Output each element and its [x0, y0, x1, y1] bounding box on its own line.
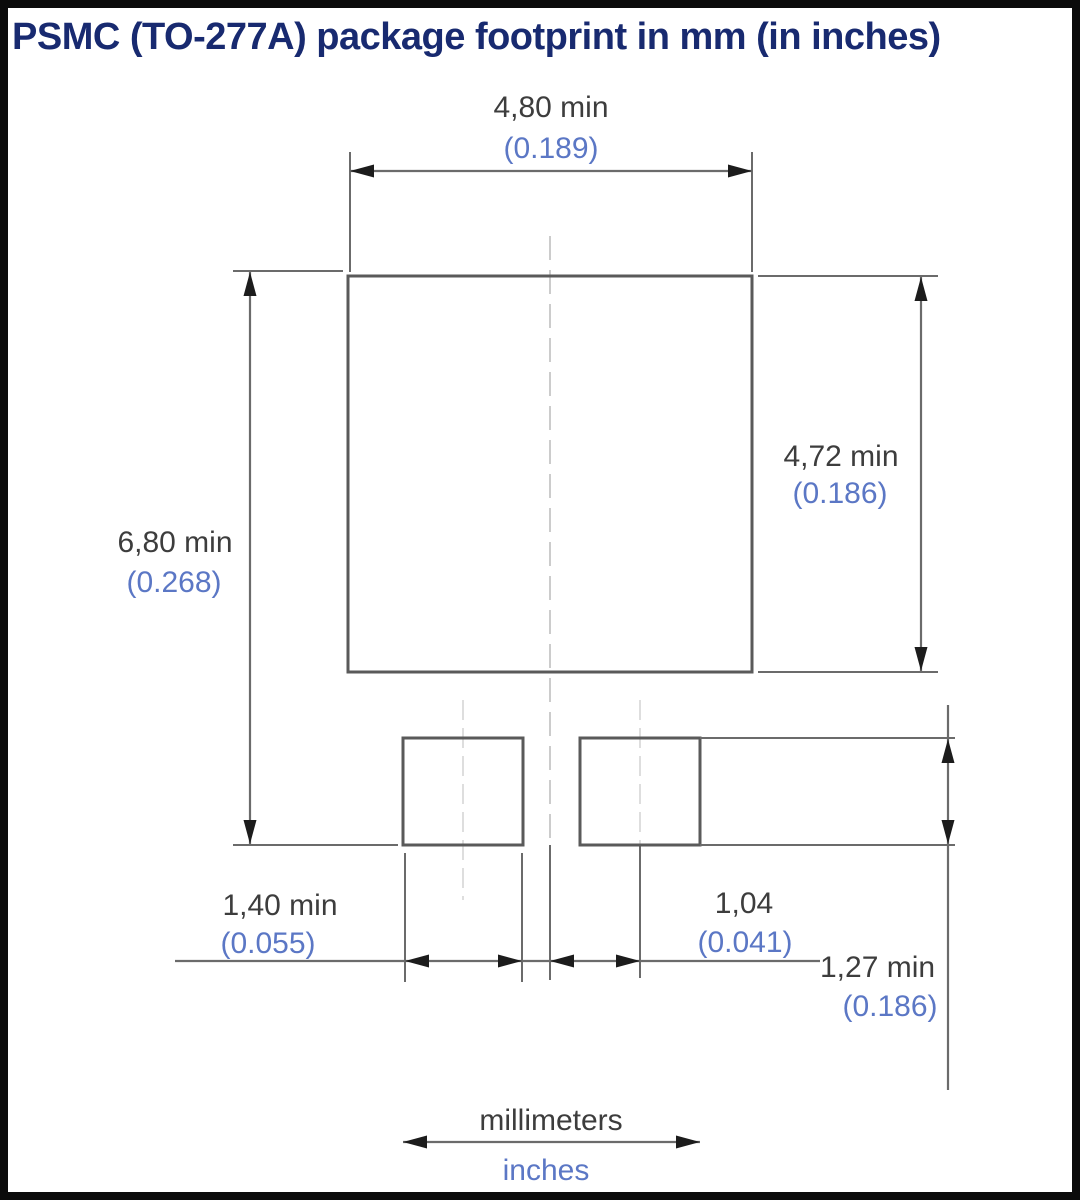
arrowhead-up-icon [942, 739, 955, 763]
arrowhead-up-icon [915, 277, 928, 301]
lead-pad-width-mm-label: 1,40 min [222, 889, 337, 922]
body-width-mm-label: 4,80 min [493, 91, 608, 124]
overall-height-inch-label: (0.268) [126, 566, 221, 599]
arrowhead-down-icon [244, 820, 257, 844]
arrowhead-left-icon [405, 955, 429, 968]
legend-inches-label: inches [503, 1154, 590, 1187]
arrowhead-right-icon [676, 1136, 700, 1149]
arrowhead-right-icon [498, 955, 522, 968]
arrowhead-right-icon [728, 165, 752, 178]
arrowhead-up-icon [244, 272, 257, 296]
body-height-inch-label: (0.186) [792, 477, 887, 510]
arrowhead-down-icon [942, 820, 955, 844]
body-width-inch-label: (0.189) [503, 132, 598, 165]
arrowhead-left-icon [403, 1136, 427, 1149]
lead-pad-width-inch-label: (0.055) [220, 927, 315, 960]
lead-pad-height-mm-label: 1,27 min [820, 951, 935, 984]
legend-millimeters-label: millimeters [479, 1104, 622, 1137]
lead-pad-height-inch-label: (0.186) [842, 990, 937, 1023]
arrowhead-down-icon [915, 647, 928, 671]
footprint-diagram: 4,80 min (0.189) 4,72 min (0.186) 6,80 m… [8, 8, 1072, 1192]
arrowhead-left-icon [550, 955, 574, 968]
lead-pad-offset-mm-label: 1,04 [715, 887, 773, 920]
arrowhead-right-icon [616, 955, 640, 968]
drawing-canvas: PSMC (TO-277A) package footprint in mm (… [0, 0, 1080, 1200]
overall-height-mm-label: 6,80 min [117, 526, 232, 559]
body-height-mm-label: 4,72 min [783, 440, 898, 473]
arrowhead-left-icon [350, 165, 374, 178]
lead-pad-offset-inch-label: (0.041) [697, 926, 792, 959]
